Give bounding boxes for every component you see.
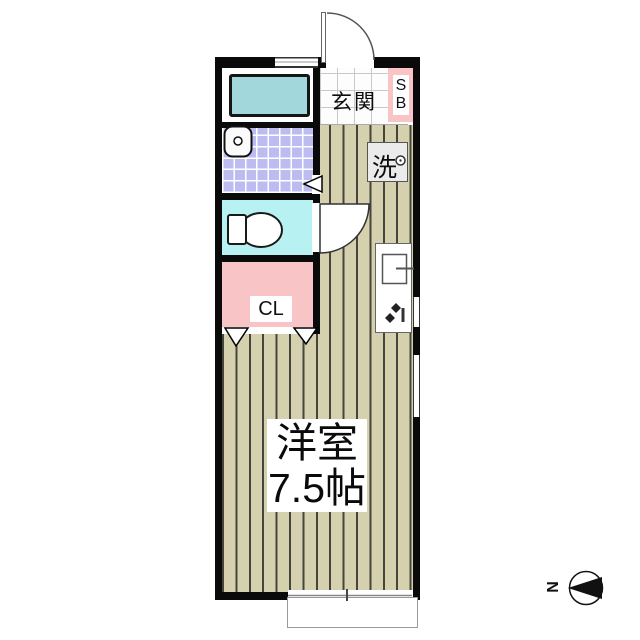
toilet-room bbox=[222, 200, 313, 255]
entry-door-leaf bbox=[321, 12, 326, 63]
entrance-step-line bbox=[320, 124, 408, 125]
wall-divider-washroom bbox=[215, 193, 320, 200]
compass-north-label: N bbox=[545, 581, 563, 593]
washroom bbox=[222, 128, 313, 193]
main-room-name: 洋室 bbox=[276, 421, 358, 466]
shoe-box-label: S B bbox=[393, 75, 409, 115]
washing-machine-label: 洗 bbox=[372, 148, 397, 184]
shoe-box-letter-s: S bbox=[396, 77, 407, 95]
bathtub bbox=[229, 74, 310, 117]
entrance-label: 玄関 bbox=[320, 86, 388, 116]
kitchen-unit bbox=[375, 243, 412, 333]
entry-door-arc-icon bbox=[327, 13, 374, 60]
side-window bbox=[413, 355, 420, 417]
wall-divider-bath bbox=[215, 122, 320, 128]
wall-mid-lower bbox=[313, 251, 320, 334]
compass-arrow-icon bbox=[568, 577, 602, 599]
bathroom-window bbox=[275, 57, 318, 68]
closet-opening bbox=[222, 327, 313, 334]
wall-mid-small bbox=[313, 193, 320, 203]
wall-top-left bbox=[215, 57, 275, 68]
kitchen-window bbox=[413, 297, 420, 327]
balcony bbox=[287, 597, 418, 628]
main-room-label: 洋室 7.5帖 bbox=[267, 419, 367, 512]
wall-bottom bbox=[215, 592, 288, 600]
wall-mid-upper bbox=[313, 68, 320, 175]
floor-plan: S B 洗 bbox=[0, 0, 640, 640]
closet-label: CL bbox=[250, 296, 292, 322]
wall-divider-toilet bbox=[215, 255, 320, 262]
wall-left bbox=[215, 57, 222, 600]
wall-right bbox=[413, 57, 420, 600]
shoe-box-letter-b: B bbox=[396, 95, 407, 113]
compass-circle-icon bbox=[570, 572, 603, 605]
main-room-area: 7.5帖 bbox=[268, 466, 366, 511]
